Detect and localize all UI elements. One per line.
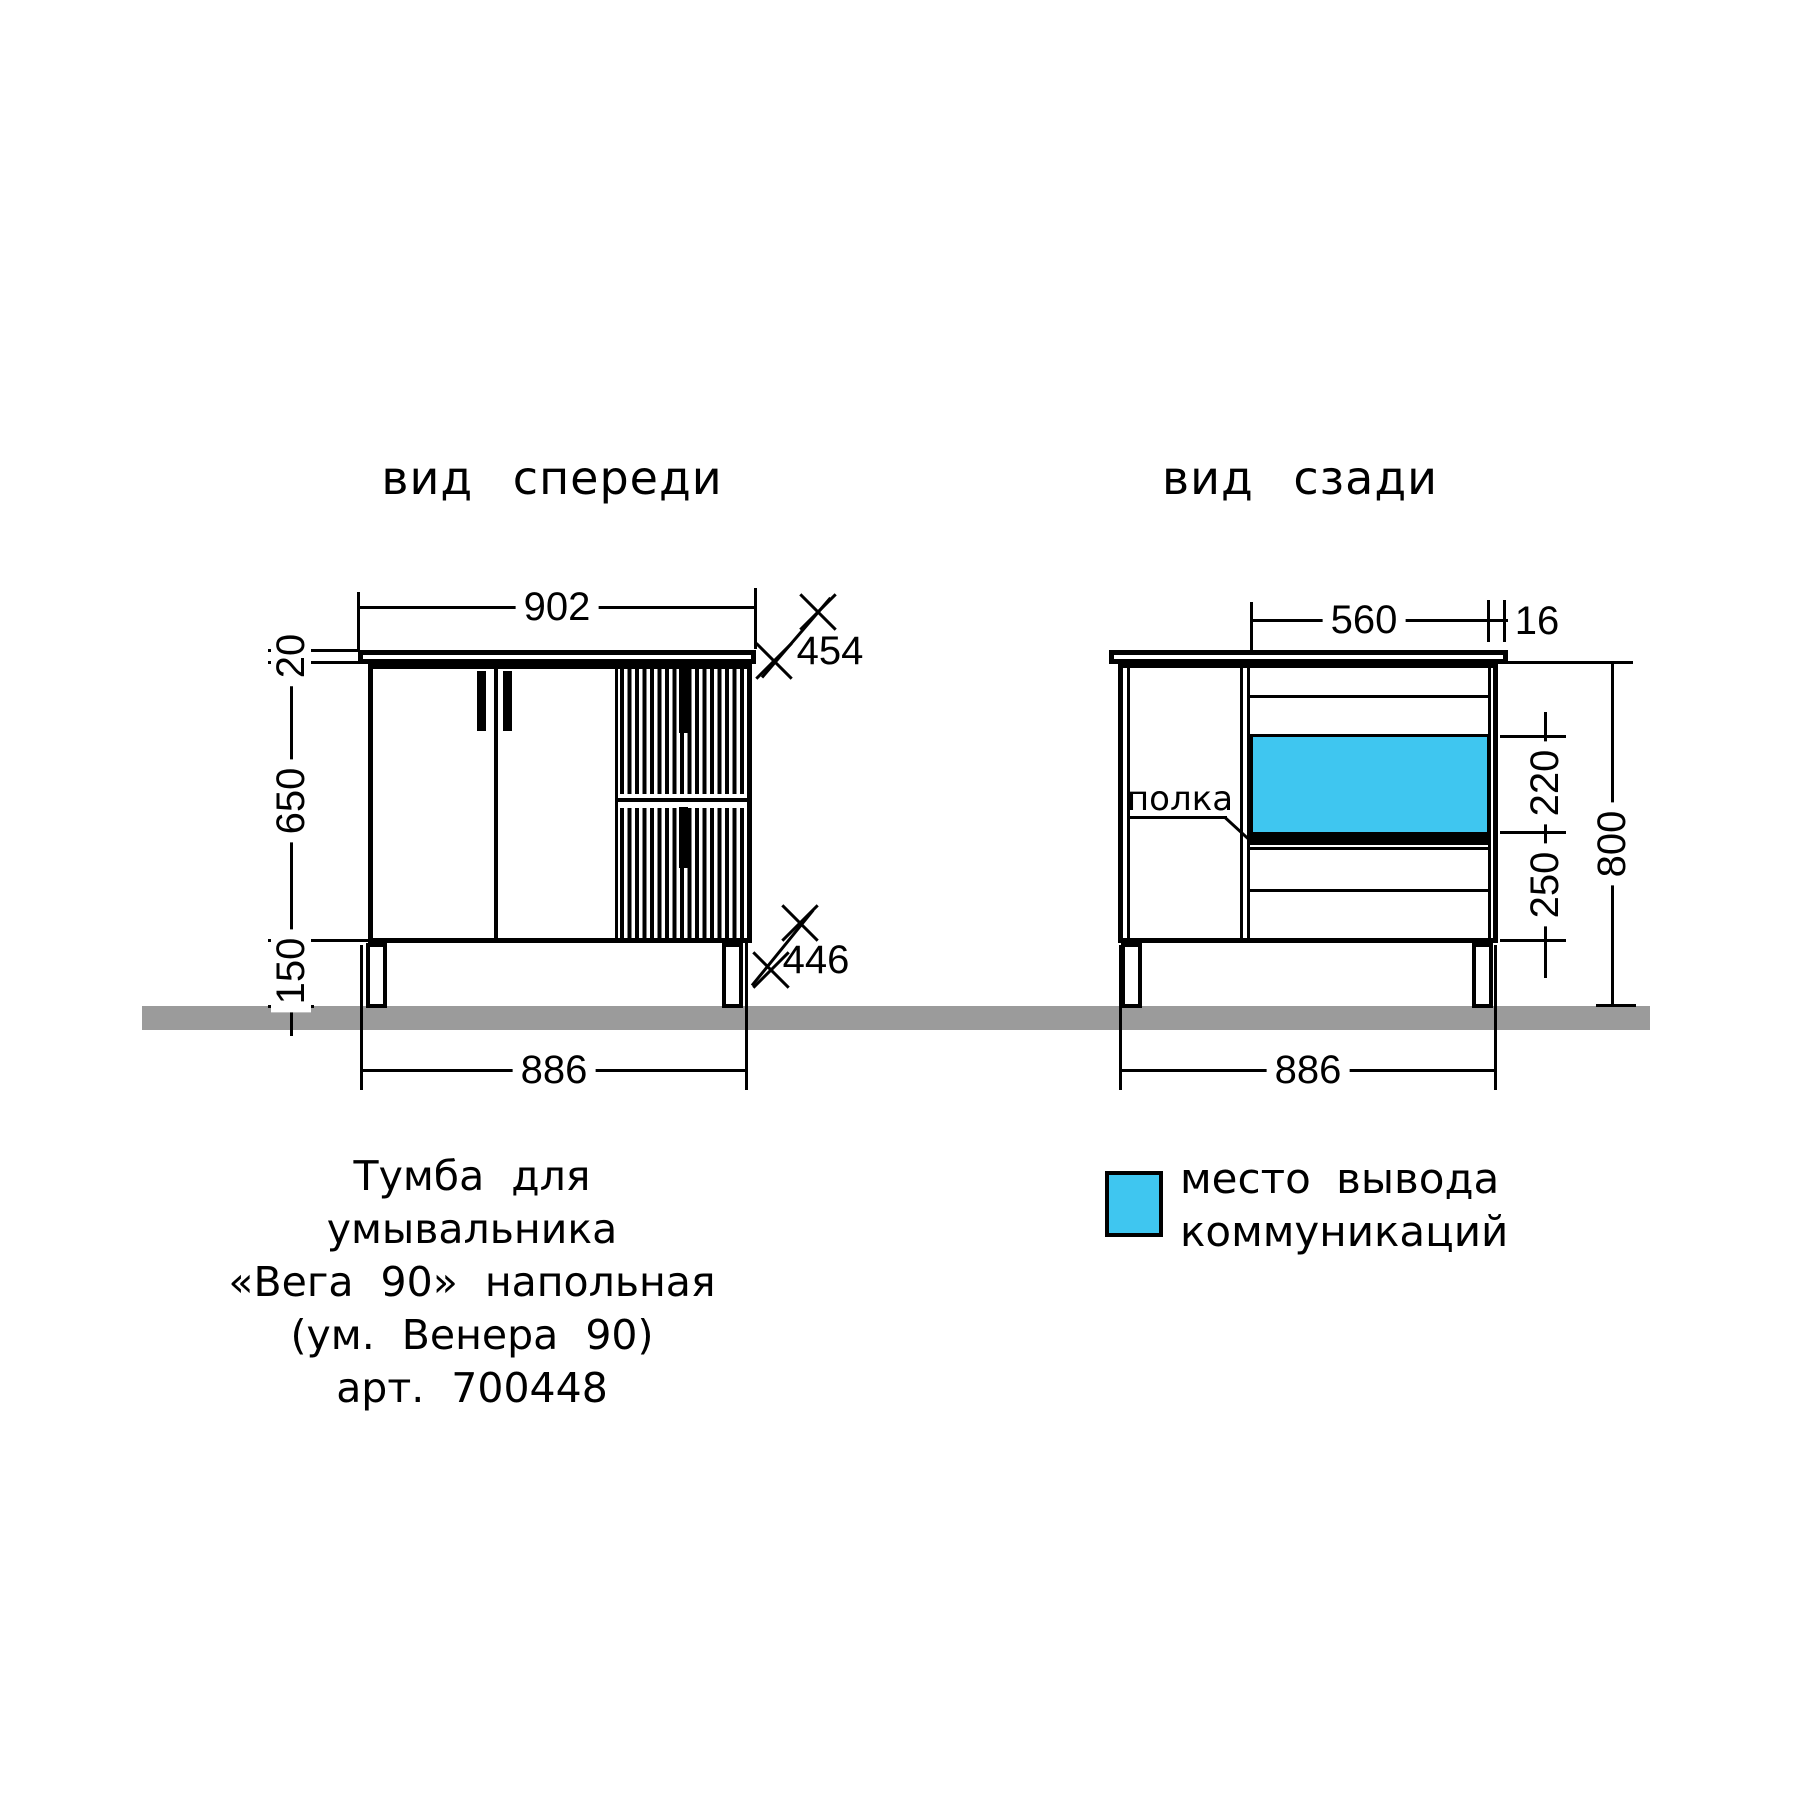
caption-line: «Вега 90» напольная (198, 1256, 746, 1309)
dim-label: 16 (1507, 601, 1568, 641)
legend-line: место вывода (1180, 1152, 1508, 1205)
dim-tick (1596, 1004, 1636, 1007)
front-view-title: вид спереди (381, 455, 722, 501)
dim-tick (1526, 939, 1566, 942)
front-left-leg (366, 943, 387, 1008)
dim-label: 454 (789, 631, 872, 671)
dim-label: 902 (516, 587, 599, 627)
dim-label: 800 (1592, 803, 1632, 886)
communications-zone (1250, 734, 1490, 835)
rear-left-leg (1121, 943, 1142, 1008)
dim-label: 20 (271, 626, 311, 687)
rear-view-title: вид сзади (1162, 455, 1438, 501)
dim-label: 650 (271, 760, 311, 843)
rear-partition-line (1240, 667, 1243, 939)
dim-tick (1250, 602, 1253, 652)
product-caption: Тумба для умывальника «Вега 90» напольна… (198, 1150, 746, 1415)
dim-label: 250 (1525, 844, 1565, 927)
front-countertop (358, 650, 756, 664)
rear-right-leg (1472, 943, 1493, 1008)
dim-label: 886 (1267, 1050, 1350, 1090)
dim-label: 560 (1323, 600, 1406, 640)
front-left-door-handle (477, 671, 486, 731)
dim-label: 446 (775, 940, 858, 980)
front-drawer-divider (617, 798, 747, 802)
dim-tick (1487, 600, 1490, 642)
front-bottom-drawer-handle (679, 807, 688, 868)
extension-line (745, 943, 748, 1090)
dim-tick (1526, 831, 1566, 834)
rear-shelf-line (1250, 695, 1490, 698)
dim-label: 220 (1525, 742, 1565, 825)
dim-tick (1503, 600, 1506, 642)
technical-drawing-page: вид спереди вид сзади 902 20 650 150 (0, 0, 1800, 1800)
floor-band (142, 1006, 1650, 1030)
dim-tick (1526, 735, 1566, 738)
caption-line: Тумба для умывальника (198, 1150, 746, 1256)
legend-text: место вывода коммуникаций (1180, 1152, 1508, 1258)
front-right-leg (722, 943, 743, 1008)
dim-label: 150 (271, 930, 311, 1013)
rear-thick-shelf-edge (1250, 833, 1490, 845)
dim-tick (357, 592, 360, 649)
front-section-divider (615, 668, 618, 938)
rear-countertop (1109, 650, 1508, 664)
front-right-door-handle (503, 671, 512, 731)
legend-color-swatch (1105, 1171, 1163, 1237)
caption-line: арт. 700448 (198, 1362, 746, 1415)
front-top-drawer-handle (679, 669, 688, 733)
front-door-divider (494, 668, 498, 938)
legend-line: коммуникаций (1180, 1205, 1508, 1258)
rear-shelf-line (1250, 889, 1490, 892)
caption-line: (ум. Венера 90) (198, 1309, 746, 1362)
shelf-label: полка (1127, 782, 1233, 816)
dim-label: 886 (513, 1050, 596, 1090)
rear-shelf-line (1250, 847, 1490, 850)
